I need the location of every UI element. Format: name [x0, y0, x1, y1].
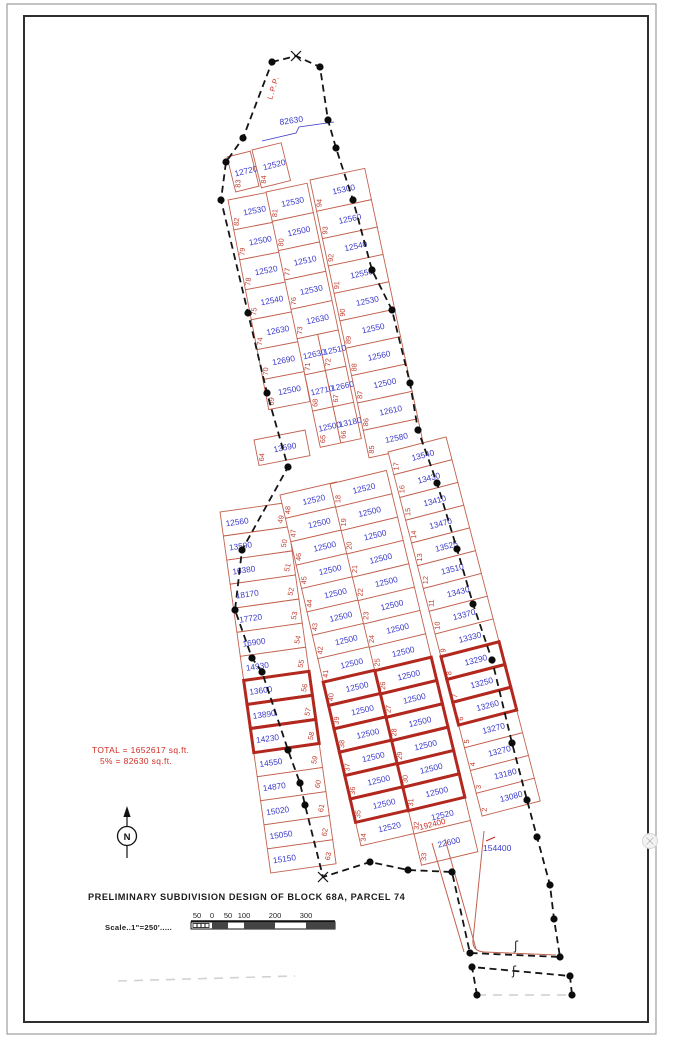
lot-number-label: 84: [259, 175, 268, 183]
lot-grid: 1272083125208412530821250079125207812540…: [220, 143, 540, 873]
scale-tick-label: 50: [193, 911, 201, 920]
lot-number-label: 46: [294, 553, 303, 561]
north-letter: N: [124, 832, 131, 843]
boundary-vertex-dot: [566, 972, 573, 979]
lot-number-label: 92: [326, 254, 335, 263]
boundary-vertex-dot: [231, 606, 238, 613]
lot-number-label: 83: [233, 179, 242, 187]
lot-column-lot-64: 1359064: [253, 430, 310, 466]
lot-number-label: 34: [359, 833, 368, 841]
boundary-vertex-dot: [406, 379, 413, 386]
lot-number-label: 85: [367, 445, 376, 454]
boundary-vertex-dot: [244, 309, 251, 316]
lot-number-label: 26: [378, 682, 387, 690]
boundary-vertex-dot: [368, 266, 375, 273]
scale-bar: Scale..1"=250'..... 50 0 50 100 200 300: [105, 911, 335, 932]
road-edge-line: [432, 843, 464, 952]
boundary-vertex-dot: [238, 546, 245, 553]
scale-bar-segment: [306, 922, 335, 929]
scale-bar-segment: [212, 922, 228, 929]
boundary-vertex-dot: [349, 196, 356, 203]
north-arrow-head: [123, 806, 130, 817]
lot-number-label: 48: [283, 506, 292, 514]
lot-number-label: 7: [450, 694, 459, 698]
lot-number-label: 78: [243, 277, 253, 286]
lot-number-label: 21: [350, 565, 359, 573]
boundary-vertex-dot: [239, 134, 246, 141]
watermark-circle-x-icon[interactable]: [643, 834, 658, 849]
north-arrow: N: [118, 806, 137, 858]
section-squiggle-mark: ʃ: [513, 939, 519, 953]
scale-tick-label: 300: [300, 911, 313, 920]
lot-number-label: 73: [295, 326, 304, 335]
boundary-vertex-dot: [469, 600, 476, 607]
boundary-vertex-dot: [508, 739, 515, 746]
boundary-vertex-dot: [296, 779, 303, 786]
lot-number-label: 25: [372, 658, 381, 666]
drawing-title: PRELIMINARY SUBDIVISION DESIGN OF BLOCK …: [88, 892, 406, 902]
lot-number-label: 71: [303, 362, 312, 371]
lot-number-label: 40: [326, 693, 335, 701]
lot-number-label: 36: [348, 786, 357, 794]
lot-number-label: 23: [361, 612, 370, 620]
boundary-vertex-dot: [258, 668, 265, 675]
lot-number-label: 42: [315, 646, 324, 654]
lot-number-label: 66: [339, 430, 348, 439]
scale-bar-segment: [244, 922, 275, 929]
lot-number-label: 10: [433, 622, 442, 630]
boundary-vertex-dot: [263, 389, 270, 396]
scale-tick-label: 50: [224, 911, 232, 920]
top-dimension-label: 82630: [279, 114, 304, 127]
boundary-vertex-dot: [546, 881, 553, 888]
boundary-vertex-dot: [366, 858, 373, 865]
lot-number-label: 19: [339, 518, 348, 526]
lot-number-label: 3: [474, 785, 483, 789]
boundary-vertex-dot: [550, 915, 557, 922]
faint-gray-dashed-line: [118, 976, 295, 981]
lot-number-label: 9: [439, 648, 448, 652]
lot-number-label: 45: [299, 576, 308, 584]
boundary-vertex-dot: [217, 196, 224, 203]
five-percent-area-text: 5% = 82630 sq.ft.: [100, 756, 172, 766]
lot-number-label: 6: [456, 717, 465, 721]
lot-number-label: 68: [310, 399, 319, 408]
area-totals-note: TOTAL = 1652617 sq.ft. 5% = 82630 sq.ft.: [92, 745, 189, 766]
plat-sheet: 1272083125208412530821250079125207812540…: [0, 0, 675, 1043]
lot-number-label: 87: [355, 390, 364, 399]
boundary-vertex-dot: [473, 991, 480, 998]
lot-number-label: 8: [444, 671, 453, 675]
lot-number-label: 28: [389, 728, 398, 736]
lot-number-label: 41: [321, 670, 330, 678]
lot-number-label: 81: [270, 209, 279, 218]
lot-number-label: 35: [353, 810, 362, 818]
boundary-vertex-dot: [556, 953, 563, 960]
lot-number-label: 86: [361, 418, 370, 427]
lot-number-label: 93: [320, 226, 329, 235]
lot-number-label: 79: [237, 247, 247, 256]
lot-number-label: 14: [409, 531, 418, 539]
dimension-line: [262, 122, 334, 141]
boundary-vertex-dot: [301, 801, 308, 808]
lot-number-label: 4: [468, 762, 477, 766]
lot-number-label: 82: [232, 217, 242, 226]
lot-number-label: 31: [406, 798, 415, 806]
lot-number-label: 38: [337, 740, 346, 748]
total-area-text: TOTAL = 1652617 sq.ft.: [92, 745, 189, 755]
lot-number-label: 39: [332, 716, 341, 724]
lot-number-label: 29: [395, 752, 404, 760]
lot-number-label: 88: [349, 363, 358, 372]
lot-number-label: 12: [421, 576, 430, 584]
boundary-vertex-dot: [284, 463, 291, 470]
boundary-vertex-dot: [433, 479, 440, 486]
lot-number-label: 64: [257, 453, 267, 462]
boundary-vertex-dot: [284, 746, 291, 753]
scale-tick-label: 100: [238, 911, 251, 920]
boundary-vertex-dot: [568, 991, 575, 998]
lot-number-label: 2: [480, 808, 489, 812]
plat-drawing: 1272083125208412530821250079125207812540…: [0, 0, 675, 1043]
lot-number-label: 33: [419, 853, 428, 861]
lpp-label: L.P.P.: [265, 75, 281, 101]
boundary-vertex-dot: [533, 833, 540, 840]
lot-number-label: 72: [323, 358, 332, 367]
lot-number-label: 37: [342, 763, 351, 771]
lot-number-label: 80: [276, 238, 285, 247]
lot-number-label: 24: [367, 635, 376, 643]
lot-number-label: 17: [391, 462, 400, 470]
lot-number-label: 27: [384, 705, 393, 713]
boundary-vertex-dot: [388, 306, 395, 313]
lot-number-label: 18: [333, 495, 342, 503]
lot-number-label: 15: [403, 508, 412, 516]
scale-tick-label: 200: [269, 911, 282, 920]
lot-number-label: 67: [331, 394, 340, 403]
boundary-vertex-dot: [523, 796, 530, 803]
lot-number-label: 69: [267, 397, 277, 406]
parcel-tick-mark: [486, 837, 495, 841]
boundary-vertex-dot: [248, 654, 255, 661]
boundary-vertex-dot: [332, 144, 339, 151]
scale-label: Scale..1"=250'.....: [105, 923, 172, 932]
lot-number-label: 11: [427, 599, 436, 607]
lot-number-label: 30: [400, 775, 409, 783]
scale-tick-label: 0: [210, 911, 214, 920]
lot-number-label: 44: [305, 599, 314, 607]
lot-number-label: 43: [310, 623, 319, 631]
lot-number-label: 77: [282, 267, 291, 276]
boundary-vertex-dot: [222, 158, 229, 165]
lot-number-label: 65: [318, 435, 327, 444]
boundary-vertex-dot: [466, 949, 473, 956]
boundary-vertex-dot: [448, 868, 455, 875]
lot-number-label: 20: [344, 542, 353, 550]
lot-number-label: 90: [338, 308, 347, 317]
detached-parcel-dashed-line: [472, 967, 572, 995]
boundary-vertex-dot: [414, 426, 421, 433]
lot-number-label: 76: [289, 297, 298, 306]
boundary-vertex-dot: [316, 63, 323, 70]
lot-number-label: 47: [288, 529, 297, 537]
boundary-vertex-dot: [268, 58, 275, 65]
boundary-vertex-dot: [488, 656, 495, 663]
lot-number-label: 22: [356, 588, 365, 596]
lot-number-label: 5: [462, 739, 471, 743]
lot-number-label: 91: [332, 281, 341, 290]
bottom-parcel-area-label: 154400: [483, 843, 512, 853]
boundary-vertex-dot: [468, 963, 475, 970]
boundary-vertex-dot: [404, 866, 411, 873]
lot-number-label: 89: [344, 336, 353, 345]
boundary-vertex-dot: [453, 545, 460, 552]
boundary-vertex-dot: [324, 116, 331, 123]
lot-number-label: 13: [415, 553, 424, 561]
lot-number-label: 94: [314, 199, 323, 208]
lot-number-label: 16: [397, 485, 406, 493]
